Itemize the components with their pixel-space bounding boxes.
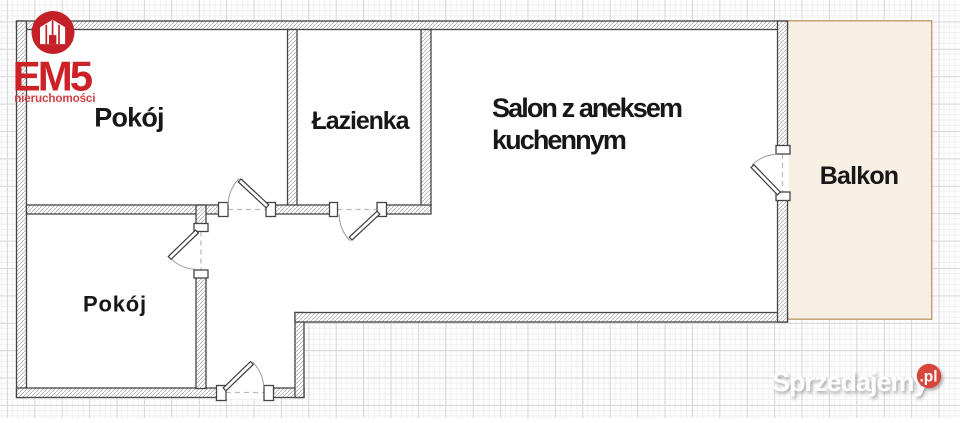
svg-text:Sprzedajemy: Sprzedajemy — [772, 367, 929, 397]
svg-text:Balkon: Balkon — [820, 162, 899, 190]
svg-text:nieruchomości: nieruchomości — [14, 92, 95, 105]
svg-text:Łazienka: Łazienka — [312, 107, 411, 135]
svg-text:.pl: .pl — [919, 369, 937, 386]
svg-text:kuchennym: kuchennym — [492, 125, 626, 155]
svg-text:Salon z aneksem: Salon z aneksem — [492, 93, 682, 123]
svg-text:Pokój: Pokój — [83, 292, 147, 317]
svg-text:Pokój: Pokój — [94, 103, 164, 133]
